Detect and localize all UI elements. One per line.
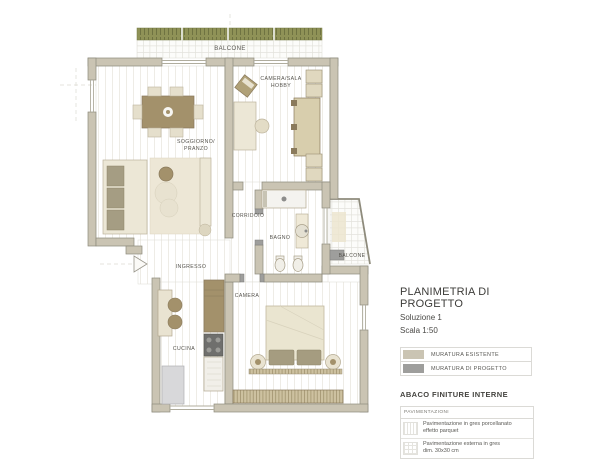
desk <box>234 102 256 150</box>
label-corridoio: CORRIDOIO <box>232 213 265 219</box>
pillow <box>269 350 294 365</box>
finishes-table-header: PAVIMENTAZIONI <box>401 407 533 419</box>
wall-new-label: MURATURA DI PROGETTO <box>431 366 507 372</box>
label-soggiorno-1: SOGGIORNO/ <box>177 139 215 145</box>
gres-label: Pavimentazione esterna in gres dim. 30x3… <box>423 441 500 456</box>
wardrobe-strip <box>233 390 343 403</box>
parquet-swatch <box>403 422 418 435</box>
kitchen-counter <box>158 290 172 336</box>
wall-existing-label: MURATURA ESISTENTE <box>431 352 499 358</box>
washing-machine <box>162 366 184 404</box>
floor-ingresso <box>138 240 230 284</box>
sofa-bed <box>294 98 320 156</box>
sheet-title: PLANIMETRIA DI PROGETTO <box>400 286 538 310</box>
tile-grid-swatch <box>403 442 418 455</box>
legend-row-new: MURATURA DI PROGETTO <box>400 361 532 376</box>
sofa-cushions <box>107 166 124 230</box>
info-panel: PLANIMETRIA DI PROGETTO Soluzione 1 Scal… <box>400 286 538 459</box>
finishes-row-parquet: Pavimentazione in gres porcellanato effe… <box>401 419 533 439</box>
wall-legend: MURATURA ESISTENTE MURATURA DI PROGETTO <box>400 347 532 376</box>
label-camera: CAMERA <box>235 293 260 299</box>
sheet-subtitle: Soluzione 1 <box>400 313 538 322</box>
legend-row-existing: MURATURA ESISTENTE <box>400 347 532 362</box>
parquet-label: Pavimentazione in gres porcellanato effe… <box>423 421 512 436</box>
wall-existing-swatch <box>403 350 424 359</box>
label-camera-hobby-1: CAMERA/SALA <box>260 76 301 82</box>
label-cucina: CUCINA <box>173 346 195 352</box>
plant <box>199 224 211 236</box>
shower-head <box>282 197 287 202</box>
balcony-railing <box>137 28 322 40</box>
wall-new-swatch <box>403 364 424 373</box>
stool <box>168 298 182 312</box>
coffee-table <box>159 167 173 181</box>
label-ingresso: INGRESSO <box>176 264 207 270</box>
sideboard <box>200 158 211 226</box>
pouf <box>160 199 178 217</box>
label-bagno: BAGNO <box>270 235 291 241</box>
floor-plan-sheet: BALCONE CAMERA/SALA HOBBY SOGGIORNO/ PRA… <box>0 0 600 460</box>
balcony-mat <box>332 212 346 242</box>
headboard <box>249 369 342 374</box>
label-balcone-top: BALCONE <box>214 46 245 52</box>
finishes-heading: ABACO FINITURE INTERNE <box>400 390 538 399</box>
finishes-row-gres: Pavimentazione esterna in gres dim. 30x3… <box>401 439 533 458</box>
label-camera-hobby-2: HOBBY <box>271 83 291 89</box>
stove <box>204 334 223 356</box>
fridge-column <box>204 280 224 332</box>
sheet-scale: Scala 1:50 <box>400 326 538 335</box>
pillow <box>297 350 321 365</box>
desk-chair <box>255 119 269 133</box>
label-soggiorno-2: PRANZO <box>184 146 208 152</box>
finishes-table: PAVIMENTAZIONI Pavimentazione in gres po… <box>400 406 534 459</box>
label-balcone-right: BALCONE <box>339 253 366 259</box>
stool <box>168 315 182 329</box>
